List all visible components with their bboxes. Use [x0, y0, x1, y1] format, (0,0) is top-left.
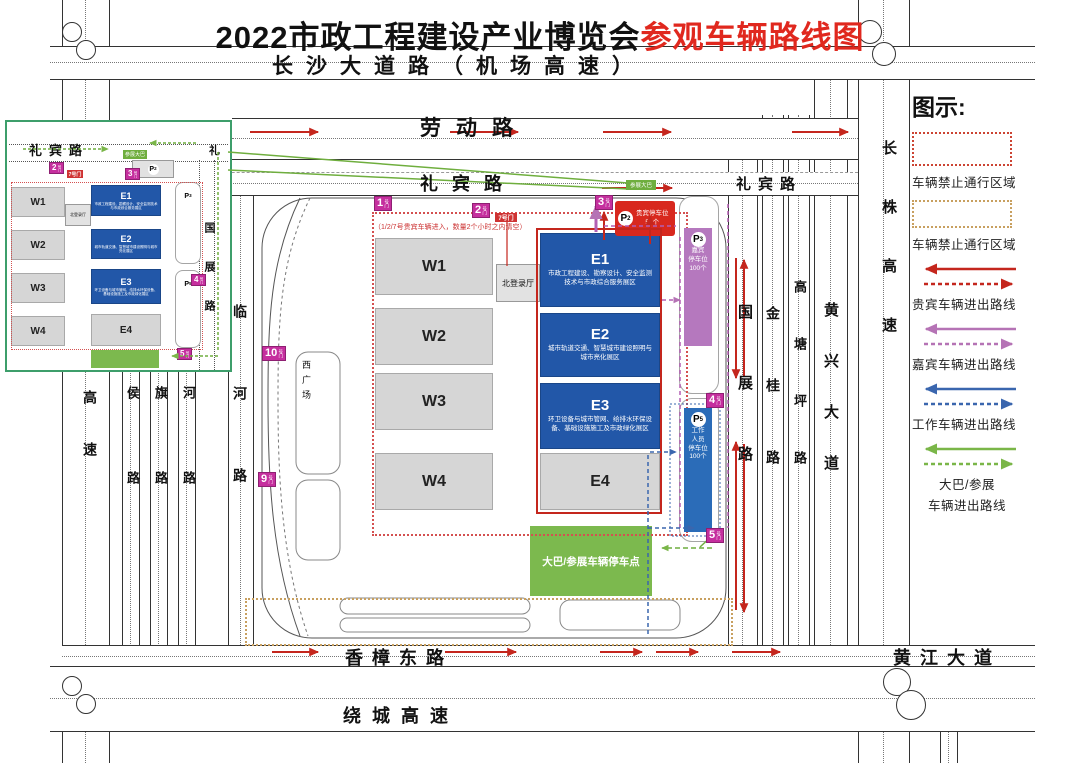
legend-title: 图示: [912, 88, 1080, 122]
parking-p3: P3 嘉宾 停车位 100个 [684, 228, 712, 346]
gate-2-marker: 2号门 [472, 203, 490, 218]
legend-staff-arrows-icon [912, 382, 1024, 412]
gate-7-badge: 7号门 [495, 213, 517, 222]
inset-gate7-badge: 7号门 [67, 170, 83, 178]
label-raocheng-expressway: 绕城高速 [343, 702, 459, 728]
legend: 图示: 车辆禁止通行区域 车辆禁止通行区域 贵宾车辆进出路线 嘉宾车辆进出路线 … [912, 88, 1080, 516]
page-title: 2022市政工程建设产业博览会参观车辆路线图 [0, 12, 1080, 57]
parking-p3-icon: P3 [691, 232, 706, 247]
road-xiangzhang [62, 645, 1035, 668]
parking-p5-text: 工作 人员 停车位 100个 [688, 427, 708, 462]
inset-libin-label: 礼宾路 [29, 140, 89, 159]
label-jingui-road: 金桂路 [763, 306, 783, 522]
inset-bus-route-map: 礼宾路 礼 国展路 W1 W2 W3 W4 E1市政工程建设、勘察设计、安全监测… [5, 120, 232, 372]
parking-p5: P5 工作 人员 停车位 100个 [684, 408, 712, 532]
gate-3-marker: 3号门 [595, 195, 613, 210]
label-libin-road-east: 礼宾路 [736, 173, 802, 194]
bus-route-badge: 参展大巴 [626, 180, 656, 190]
inset-gate-2: 2号门 [49, 162, 64, 174]
inset-gate-5: 5号门 [177, 348, 192, 360]
interchange-icon [62, 676, 82, 696]
legend-no-traffic-red-label: 车辆禁止通行区域 [912, 172, 1080, 191]
gate-5-marker: 5号门 [706, 528, 724, 543]
title-highlight: 参观车辆路线图 [640, 20, 864, 55]
legend-vip-arrows-icon [912, 262, 1024, 292]
legend-guest-route-label: 嘉宾车辆进出路线 [912, 354, 1080, 373]
inset-bus-parking [91, 350, 159, 368]
inset-no-traffic-zone [11, 182, 203, 350]
interchange-icon [896, 690, 926, 720]
inset-p2-icon: P2 [148, 164, 159, 175]
parking-p3-text: 嘉宾 停车位 100个 [688, 247, 708, 273]
bus-parking-area: 大巴/参展车辆停车点 [530, 526, 652, 596]
label-west-expressway: 高速 [80, 390, 100, 494]
inset-bus-badge: 参展大巴 [123, 150, 147, 159]
label-he-road: 河路 [179, 386, 198, 556]
label-xiangzhang-road: 香樟东路 [345, 644, 453, 670]
no-traffic-zone-tan [245, 598, 733, 646]
no-traffic-zone-red [372, 212, 688, 536]
legend-no-traffic-tan-label: 车辆禁止通行区域 [912, 234, 1080, 253]
label-linhe-road: 临河路 [230, 304, 250, 550]
legend-vip-route-label: 贵宾车辆进出路线 [912, 294, 1080, 313]
label-hou-road: 侯路 [123, 386, 142, 556]
title-main: 2022市政工程建设产业博览会 [216, 20, 641, 55]
label-huangjiang-avenue: 黄江大道 [893, 644, 1001, 670]
label-libin-road: 礼宾路 [420, 170, 516, 196]
legend-bus-route-label-line2: 车辆进出路线 [912, 495, 1022, 514]
gate-9-marker: 9号门 [258, 472, 276, 487]
label-changzhu-expressway: 长株高速 [878, 140, 899, 376]
label-huangxing-avenue: 黄兴大道 [820, 302, 841, 506]
legend-bus-route-label-line1: 大巴/参展 [912, 474, 1022, 493]
road-laodong [232, 118, 858, 160]
inset-gate-3: 3号门 [125, 168, 140, 180]
legend-bus-arrows-icon [912, 442, 1024, 472]
label-gaotangping-road: 高塘坪路 [790, 280, 809, 508]
gate-10-marker: 10号门 [262, 346, 286, 361]
parking-p2-icon: P2 [618, 211, 633, 226]
legend-guest-arrows-icon [912, 322, 1024, 352]
gate-4-marker: 4号门 [706, 393, 724, 408]
gate-1-marker: 1号门 [374, 196, 392, 211]
legend-no-traffic-tan-swatch [912, 200, 1012, 228]
inset-libin-char: 礼 [209, 142, 220, 158]
inset-gate-4: 4号门 [191, 274, 206, 286]
parking-p5-icon: P5 [691, 412, 706, 427]
parking-p2: P2 贵宾停车位 50个 [615, 201, 675, 236]
route-map: W1 W2 W3 W4 E1 市政工程建设、勘察设计、安全监测技术与市政综合服务… [0, 0, 1080, 763]
interchange-icon [76, 694, 96, 714]
label-qi-road: 旗路 [151, 386, 170, 556]
bus-parking-label: 大巴/参展车辆停车点 [542, 554, 639, 569]
legend-no-traffic-red-swatch [912, 132, 1012, 166]
label-guozhan-road: 国展路 [734, 304, 755, 517]
vip-entry-note: （1/2/7号贵宾车辆进入，数量2个小时之内清空） [374, 222, 526, 232]
legend-staff-route-label: 工作车辆进出路线 [912, 414, 1080, 433]
label-west-plaza: 西广场 [300, 360, 313, 405]
parking-p2-text: 贵宾停车位 50个 [636, 210, 669, 228]
label-laodong-road: 劳动路 [420, 112, 528, 142]
